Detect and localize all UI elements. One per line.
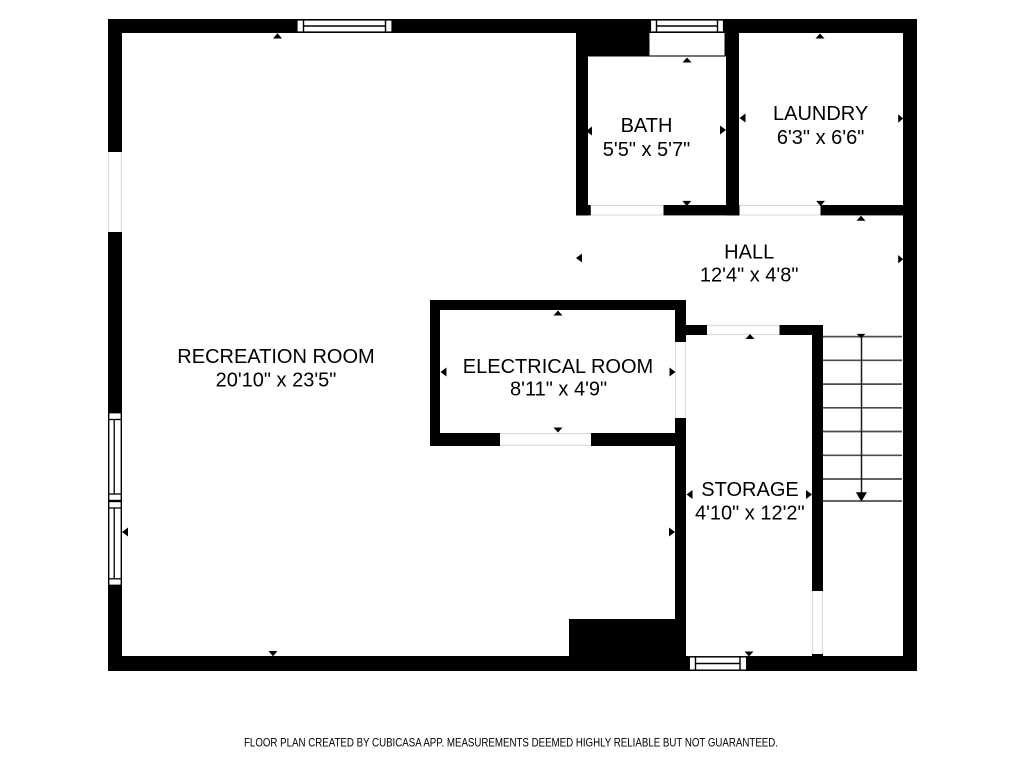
svg-text:4'10" x 12'2": 4'10" x 12'2"	[695, 503, 805, 525]
svg-text:8'11" x 4'9": 8'11" x 4'9"	[510, 379, 607, 401]
svg-text:LAUNDRY: LAUNDRY	[773, 103, 868, 125]
svg-text:FLOOR PLAN CREATED BY CUBICASA: FLOOR PLAN CREATED BY CUBICASA APP. MEAS…	[244, 735, 778, 749]
svg-text:HALL: HALL	[724, 241, 774, 263]
svg-text:BATH: BATH	[621, 115, 673, 137]
svg-text:ELECTRICAL ROOM: ELECTRICAL ROOM	[463, 356, 653, 378]
svg-text:5'5" x 5'7": 5'5" x 5'7"	[603, 139, 690, 161]
svg-text:20'10" x 23'5": 20'10" x 23'5"	[216, 369, 337, 391]
svg-text:STORAGE: STORAGE	[701, 479, 798, 501]
svg-text:6'3" x 6'6": 6'3" x 6'6"	[777, 127, 864, 149]
svg-text:RECREATION ROOM: RECREATION ROOM	[177, 346, 374, 368]
svg-text:12'4" x 4'8": 12'4" x 4'8"	[700, 264, 799, 286]
